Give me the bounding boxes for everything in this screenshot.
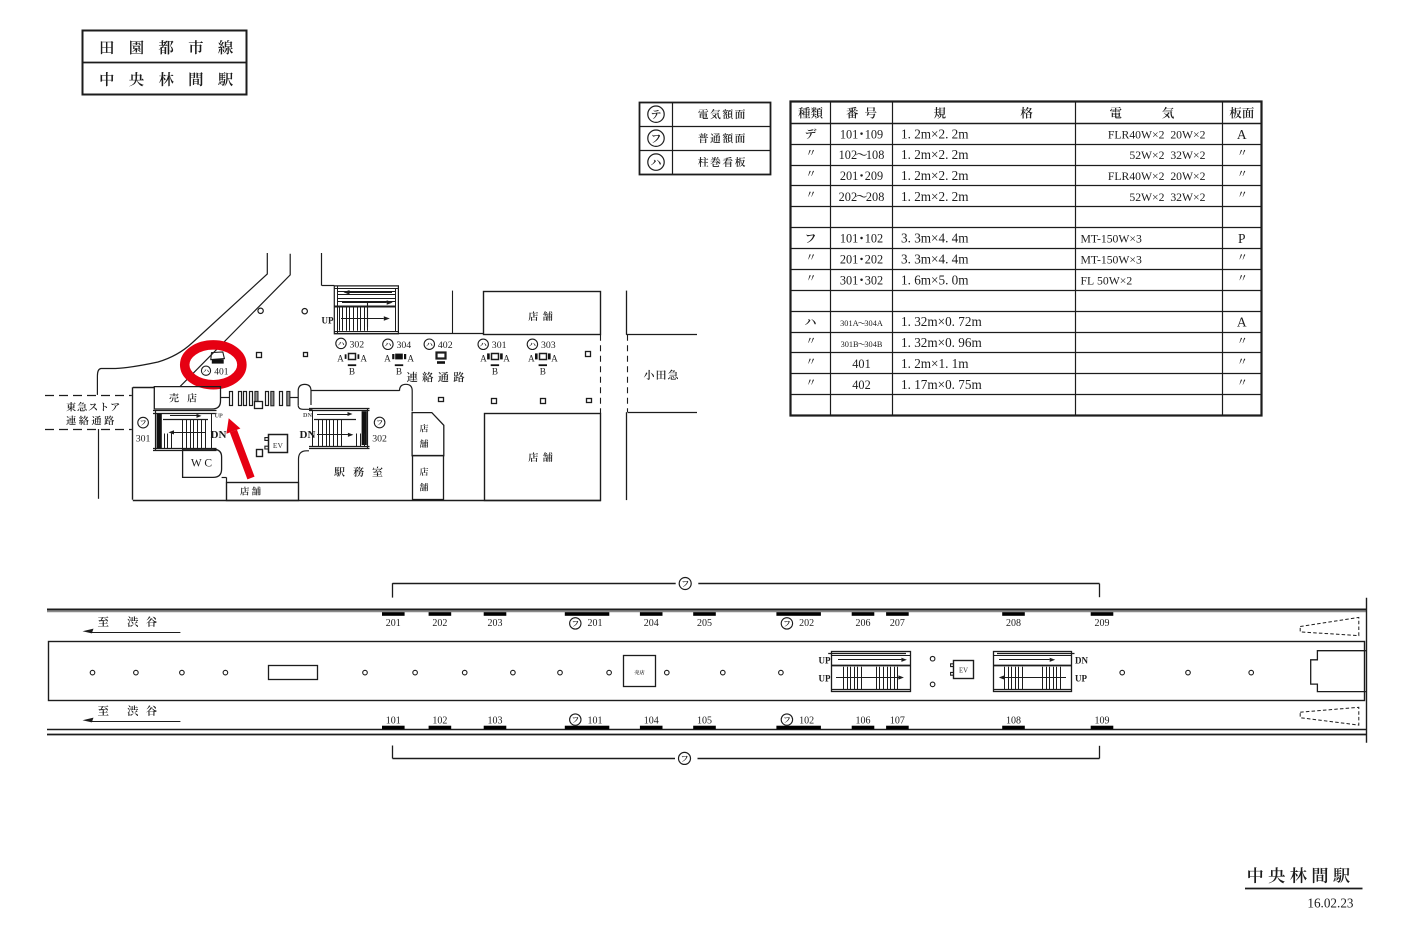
svg-text:MT-150W×3: MT-150W×3	[1081, 233, 1143, 246]
svg-text:206: 206	[856, 618, 871, 629]
svg-text:104: 104	[644, 715, 659, 726]
svg-text:109: 109	[865, 127, 883, 141]
svg-text:3. 3m×4. 4m: 3. 3m×4. 4m	[901, 252, 969, 267]
svg-text:402: 402	[852, 378, 870, 392]
svg-text:301: 301	[840, 273, 858, 287]
svg-text:301: 301	[492, 340, 507, 351]
svg-text:108: 108	[866, 148, 884, 162]
svg-text:UP: UP	[322, 316, 334, 326]
svg-text:201: 201	[386, 618, 401, 629]
svg-text:102: 102	[432, 715, 447, 726]
svg-text:302: 302	[865, 273, 883, 287]
svg-text:EV: EV	[959, 667, 968, 674]
svg-text:304: 304	[397, 340, 412, 351]
svg-text:1. 2m×2. 2m: 1. 2m×2. 2m	[901, 168, 969, 183]
svg-text:A: A	[384, 353, 391, 363]
svg-text:1. 32m×0. 96m: 1. 32m×0. 96m	[901, 335, 982, 350]
svg-text:203: 203	[488, 618, 503, 629]
svg-text:A: A	[1237, 315, 1247, 330]
svg-text:1. 6m×5. 0m: 1. 6m×5. 0m	[901, 272, 969, 287]
svg-text:401: 401	[852, 357, 870, 371]
svg-text:1. 2m×2. 2m: 1. 2m×2. 2m	[901, 126, 969, 141]
svg-text:UP: UP	[215, 412, 223, 419]
svg-text:A: A	[407, 353, 414, 363]
svg-text:208: 208	[1006, 618, 1021, 629]
svg-text:202: 202	[432, 618, 447, 629]
svg-text:202: 202	[799, 618, 814, 629]
svg-text:1. 32m×0. 72m: 1. 32m×0. 72m	[901, 314, 982, 329]
svg-text:FL 50W×2: FL 50W×2	[1081, 274, 1133, 287]
svg-text:FLR40W×2 20W×2: FLR40W×2 20W×2	[1108, 128, 1206, 141]
svg-text:205: 205	[697, 618, 712, 629]
svg-text:103: 103	[488, 715, 503, 726]
svg-text:3. 3m×4. 4m: 3. 3m×4. 4m	[901, 231, 969, 246]
svg-text:B: B	[349, 367, 355, 377]
svg-text:401: 401	[214, 367, 229, 377]
svg-text:A: A	[528, 353, 535, 363]
svg-text:52W×2 32W×2: 52W×2 32W×2	[1129, 149, 1205, 162]
svg-text:1. 2m×2. 2m: 1. 2m×2. 2m	[901, 189, 969, 204]
svg-text:1. 2m×1. 1m: 1. 2m×1. 1m	[901, 356, 969, 371]
svg-text:303: 303	[541, 340, 556, 351]
svg-text:106: 106	[856, 715, 871, 726]
svg-text:DN: DN	[303, 412, 312, 419]
svg-text:304B: 304B	[864, 340, 882, 349]
svg-text:1. 2m×2. 2m: 1. 2m×2. 2m	[901, 147, 969, 162]
svg-text:MT-150W×3: MT-150W×3	[1081, 254, 1143, 267]
svg-text:108: 108	[1006, 715, 1021, 726]
svg-text:UP: UP	[1075, 674, 1087, 684]
svg-text:P: P	[1238, 231, 1246, 246]
svg-text:302: 302	[350, 339, 365, 350]
svg-text:207: 207	[890, 618, 905, 629]
svg-text:105: 105	[697, 715, 712, 726]
svg-text:52W×2 32W×2: 52W×2 32W×2	[1129, 191, 1205, 204]
svg-text:301A: 301A	[840, 319, 858, 328]
svg-text:107: 107	[890, 715, 905, 726]
svg-text:A: A	[551, 353, 558, 363]
svg-text:16.02.23: 16.02.23	[1307, 896, 1354, 911]
svg-text:201: 201	[840, 253, 858, 267]
svg-text:209: 209	[1095, 618, 1110, 629]
svg-text:304A: 304A	[864, 319, 882, 328]
svg-text:101: 101	[840, 232, 858, 246]
svg-text:102: 102	[799, 715, 814, 726]
svg-text:102: 102	[839, 148, 857, 162]
svg-text:202: 202	[839, 190, 857, 204]
svg-text:201: 201	[588, 618, 603, 629]
svg-text:101: 101	[840, 127, 858, 141]
svg-text:B: B	[396, 367, 402, 377]
svg-text:102: 102	[865, 232, 883, 246]
svg-text:DN: DN	[300, 429, 316, 441]
svg-text:301B: 301B	[841, 340, 859, 349]
svg-text:B: B	[540, 367, 546, 377]
svg-text:B: B	[492, 367, 498, 377]
svg-text:UP: UP	[819, 655, 831, 665]
svg-text:204: 204	[644, 618, 659, 629]
svg-text:FLR40W×2 20W×2: FLR40W×2 20W×2	[1108, 170, 1206, 183]
svg-text:209: 209	[865, 169, 883, 183]
svg-text:302: 302	[372, 434, 387, 445]
svg-text:101: 101	[588, 715, 603, 726]
svg-text:A: A	[1237, 127, 1247, 142]
svg-text:A: A	[503, 353, 510, 363]
svg-text:DN: DN	[211, 429, 227, 441]
svg-text:A: A	[360, 353, 367, 363]
svg-text:EV: EV	[273, 441, 284, 450]
svg-text:202: 202	[865, 253, 883, 267]
svg-text:101: 101	[386, 715, 401, 726]
svg-text:208: 208	[866, 190, 884, 204]
svg-text:109: 109	[1095, 715, 1110, 726]
svg-text:1. 17m×0. 75m: 1. 17m×0. 75m	[901, 377, 982, 392]
svg-text:A: A	[480, 353, 487, 363]
svg-text:201: 201	[840, 169, 858, 183]
svg-text:UP: UP	[819, 674, 831, 684]
svg-text:A: A	[337, 353, 344, 363]
svg-text:W C: W C	[191, 458, 213, 470]
svg-text:402: 402	[438, 340, 453, 351]
svg-text:301: 301	[136, 434, 151, 445]
svg-text:DN: DN	[1075, 655, 1088, 665]
